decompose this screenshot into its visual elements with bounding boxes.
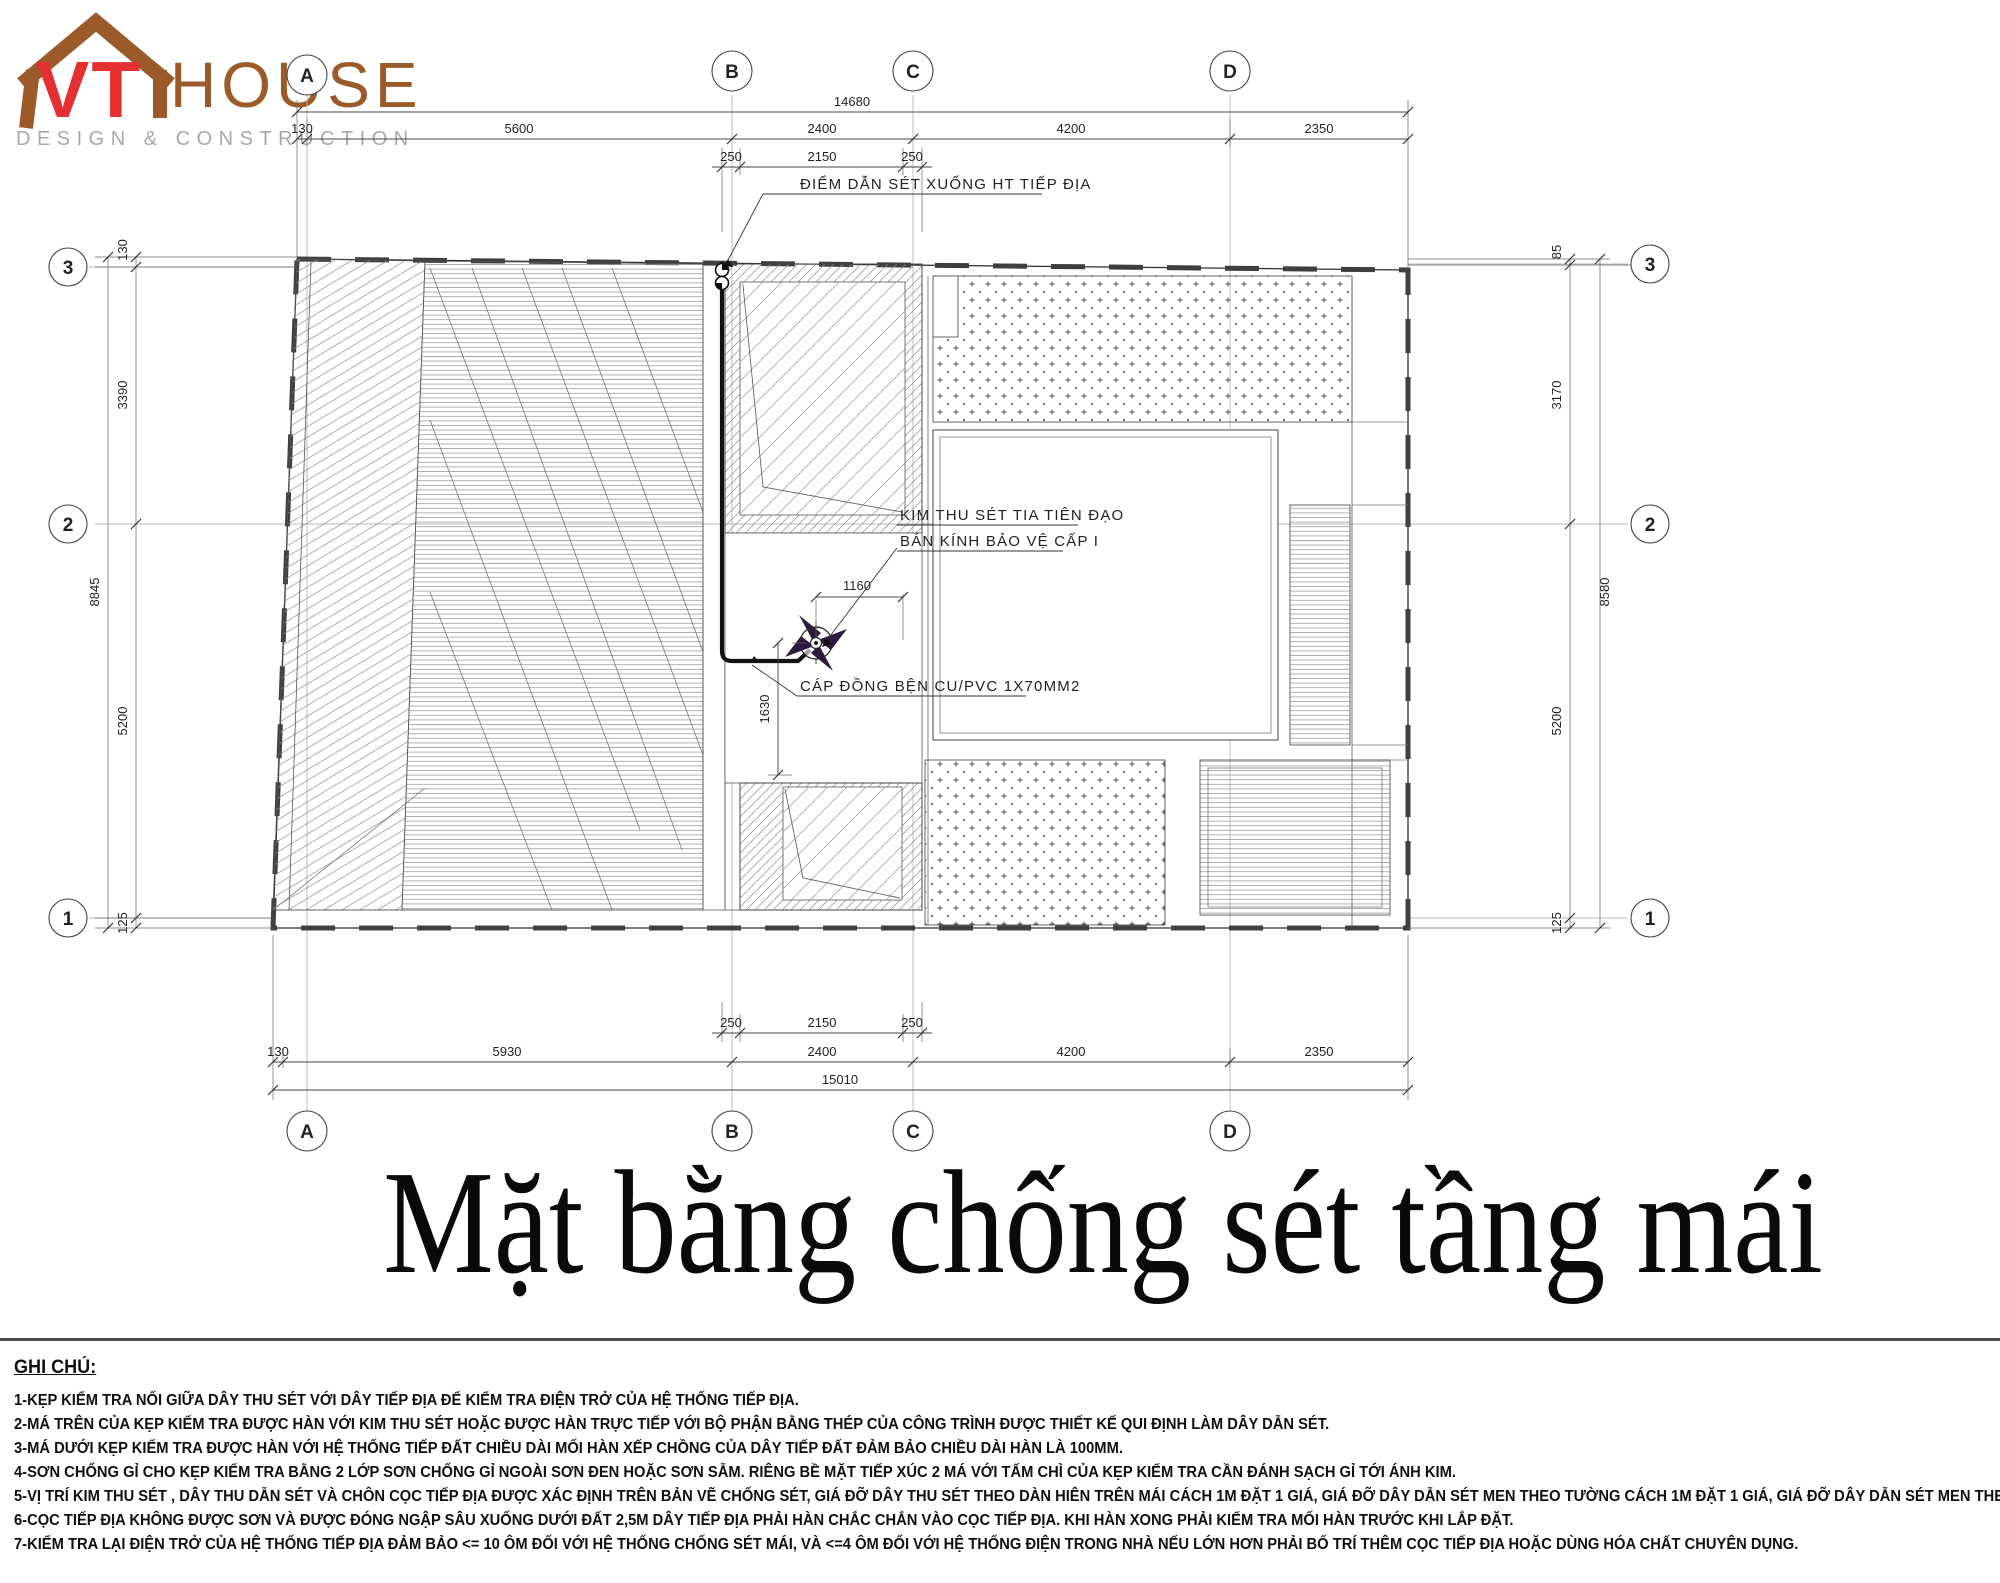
note-item-4: 4-SƠN CHỐNG GỈ CHO KẸP KIỂM TRA BẰNG 2 L… [14,1461,1964,1485]
dim-top-4200: 4200 [1057,121,1086,136]
grid-row-1-right: 1 [1645,909,1656,930]
grid-col-c-top: C [906,62,920,83]
note-item-5: 5-VỊ TRÍ KIM THU SÉT , DÂY THU DẪN SÉT V… [14,1485,1964,1509]
grid-row-3-left: 3 [63,258,74,279]
dim-left-125: 125 [115,912,130,934]
company-logo: VT HOUSE DESIGN & CONSTRUCTION [0,0,420,170]
dim-top-2400: 2400 [808,121,837,136]
notes-divider [0,1338,2000,1341]
dim-bot-2400: 2400 [808,1044,837,1059]
down-conductor-cable [722,262,810,661]
building-plan [273,259,1408,928]
dim-bot-130: 130 [267,1044,289,1059]
dim-bot-250a: 250 [720,1015,742,1030]
note-item-6: 6-CỌC TIẾP ĐỊA KHÔNG ĐƯỢC SƠN VÀ ĐƯỢC ĐÓ… [14,1509,1964,1533]
grid-row-1-left: 1 [63,909,74,930]
dim-left-overall: 8845 [87,578,102,607]
dimensions [95,100,1631,1100]
mid-lower-roof-block [740,783,922,910]
label-rod-line2: BÁN KÍNH BẢO VỆ CẤP I [900,533,1099,550]
left-roof-eave-band [273,259,425,910]
roof-outline [273,259,1408,928]
down-conductor-anchor-icon [716,264,729,290]
lightning-system [716,262,848,671]
left-roof-seam-lines [273,268,703,910]
label-cable: CÁP ĐỒNG BỆN CU/PVC 1X70MM2 [800,677,1081,695]
note-item-3: 3-MÁ DƯỚI KẸP KIỂM TRA ĐƯỢC HÀN VỚI HỆ T… [14,1437,1964,1461]
dim-right-overall: 8580 [1597,578,1612,607]
left-roof-slope [402,261,703,910]
drawing-title: Mặt bằng chống sét tầng mái [383,1138,1677,1308]
note-item-7: 7-KIỂM TRA LẠI ĐIỆN TRỞ CỦA HỆ THỐNG TIẾ… [14,1533,1964,1557]
grid-bubble-labels: A B C D A B C D 3 2 1 3 2 1 [63,62,1656,1143]
dim-left-5200: 5200 [115,707,130,736]
grid-lines [89,95,1628,1111]
grid-bubbles [49,51,1669,1151]
label-rod-line1: KIM THU SÉT TIA TIÊN ĐẠO [900,507,1124,524]
lightning-rod-icon [785,615,847,671]
dim-bot-overall: 15010 [822,1072,858,1087]
dim-right-5200: 5200 [1549,707,1564,736]
logo-vt-text: VT [36,44,142,136]
dim-top-2150: 2150 [808,149,837,164]
dim-cable-run: 1630 [757,695,772,724]
dim-bot-2150: 2150 [808,1015,837,1030]
dim-right-125: 125 [1549,912,1564,934]
note-item-2: 2-MÁ TRÊN CỦA KẸP KIỂM TRA ĐƯỢC HÀN VỚI … [14,1413,1964,1437]
annotations: ĐIỂM DẪN SÉT XUỐNG HT TIẾP ĐỊA KIM THU S… [724,175,1124,696]
dim-bot-4200: 4200 [1057,1044,1086,1059]
dim-left-3390: 3390 [115,381,130,410]
notes-section: GHI CHÚ: 1-KẸP KIỂM TRA NỐI GIỮA DÂY THU… [0,1338,2000,1557]
dim-top-2350: 2350 [1305,121,1334,136]
grid-col-d-top: D [1223,62,1237,83]
flat-roof [933,430,1278,740]
grid-row-3-right: 3 [1645,255,1656,276]
louver-strip [1290,505,1350,745]
label-down-conductor-point: ĐIỂM DẪN SÉT XUỐNG HT TIẾP ĐỊA [800,175,1092,193]
logo-house-text: HOUSE [170,48,423,122]
mid-upper-roof-block [725,264,922,533]
terrace-stipple-top [933,276,1352,422]
dim-right-3170: 3170 [1549,381,1564,410]
grid-col-b-top: B [725,62,739,83]
grid-row-2-right: 2 [1645,515,1656,536]
dim-bot-2350: 2350 [1305,1044,1334,1059]
dim-top-overall: 14680 [834,94,870,109]
dim-top-5600: 5600 [505,121,534,136]
note-item-1: 1-KẸP KIỂM TRA NỐI GIỮA DÂY THU SÉT VỚI … [14,1389,1964,1413]
sheet: VT HOUSE DESIGN & CONSTRUCTION [0,0,2000,1583]
grid-col-a-bottom: A [300,1122,314,1143]
louver-roof-bottom [1200,760,1390,915]
dim-top-250b: 250 [901,149,923,164]
dim-bot-250b: 250 [901,1015,923,1030]
logo-tagline: DESIGN & CONSTRUCTION [16,128,415,151]
dimension-ticks [103,107,1605,1095]
dim-rod-offset: 1160 [843,578,871,593]
notes-heading: GHI CHÚ: [14,1357,1901,1379]
dim-left-130: 130 [115,239,130,261]
perimeter-conductor-tape [273,259,1408,928]
dimension-texts: 14680 130 5600 2400 4200 2350 250 2150 2… [87,94,1612,1087]
courtyard [725,533,922,783]
dim-top-250a: 250 [720,149,742,164]
dim-right-85: 85 [1549,245,1564,259]
grid-row-2-left: 2 [63,515,74,536]
terrace-stipple-bottom [925,760,1165,925]
dim-bot-5930: 5930 [493,1044,522,1059]
